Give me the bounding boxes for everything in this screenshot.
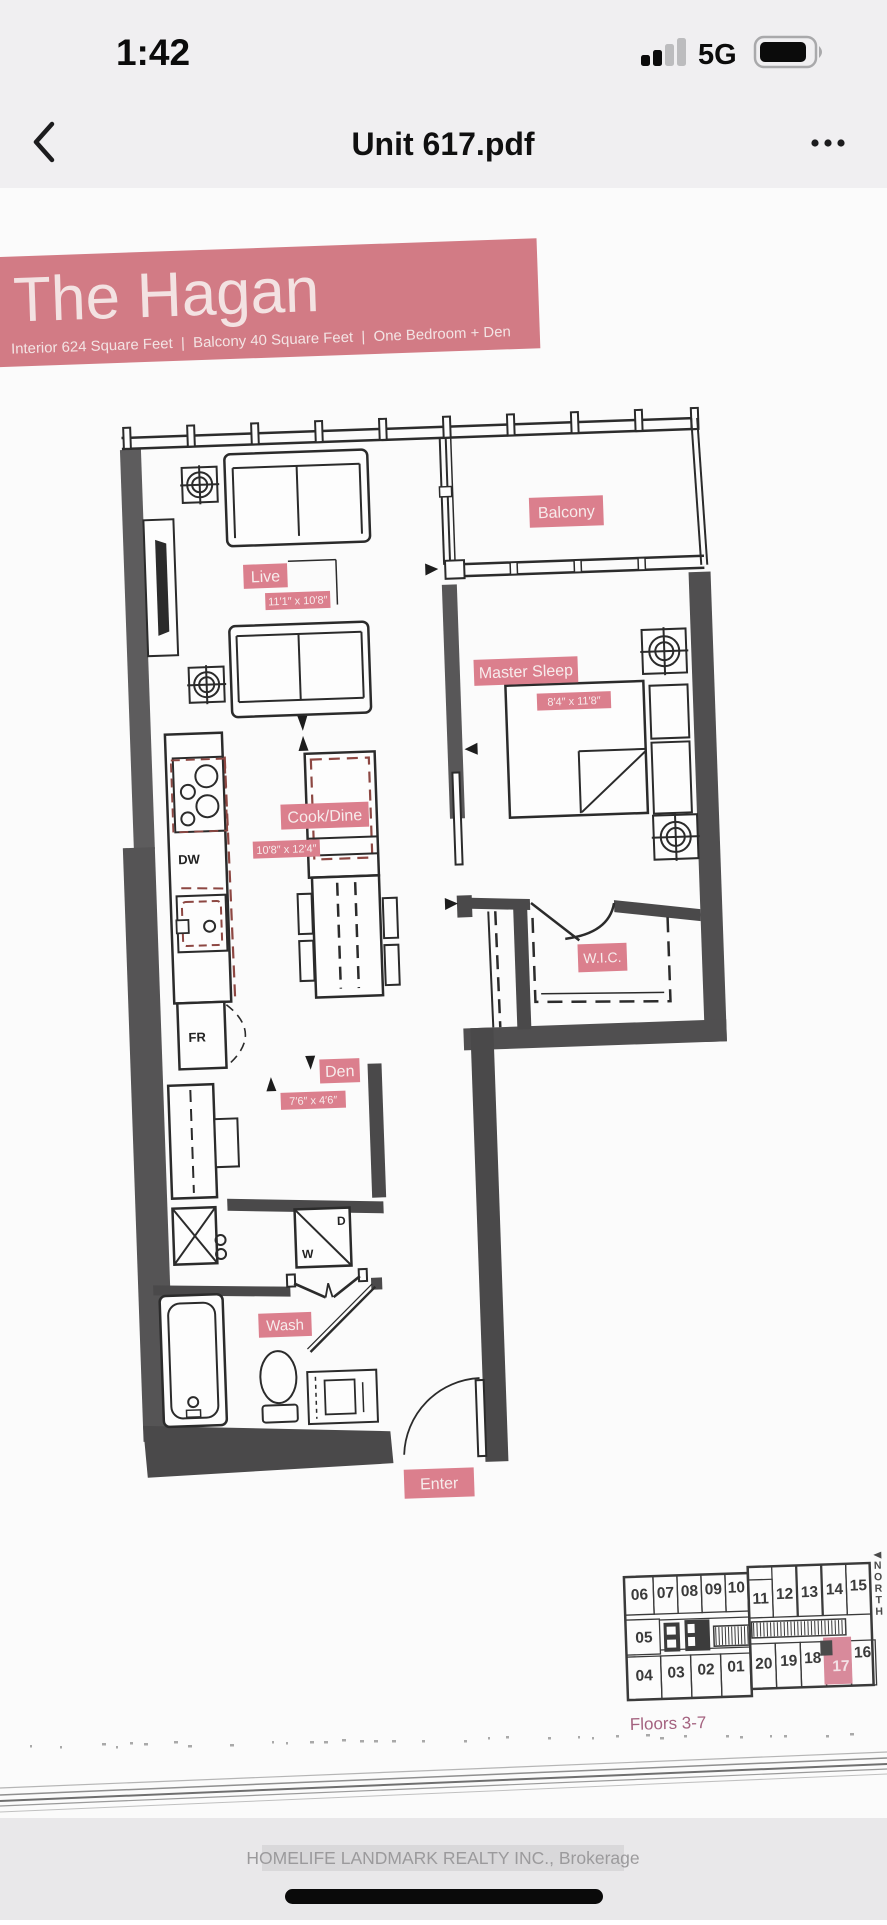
- svg-text:7′6″ x 4′6″: 7′6″ x 4′6″: [289, 1094, 337, 1108]
- svg-text:Den: Den: [325, 1063, 355, 1081]
- svg-text:8′4″ x 11′8″: 8′4″ x 11′8″: [547, 695, 601, 709]
- svg-text:14: 14: [826, 1581, 844, 1599]
- svg-text:The Hagan: The Hagan: [12, 255, 320, 336]
- svg-text:20: 20: [755, 1655, 773, 1673]
- svg-text:13: 13: [801, 1584, 819, 1602]
- svg-text:D: D: [337, 1214, 346, 1228]
- svg-text:Unit 617.pdf: Unit 617.pdf: [351, 126, 534, 162]
- svg-text:18: 18: [804, 1650, 822, 1668]
- svg-text:11: 11: [752, 1590, 769, 1608]
- svg-text:02: 02: [697, 1661, 715, 1679]
- svg-text:17: 17: [832, 1658, 850, 1676]
- svg-text:1:42: 1:42: [116, 32, 190, 73]
- svg-text:10′8″ x 12′4″: 10′8″ x 12′4″: [256, 843, 317, 857]
- svg-text:W.I.C.: W.I.C.: [583, 949, 622, 966]
- svg-text:09: 09: [704, 1581, 722, 1599]
- svg-text:10: 10: [727, 1579, 745, 1597]
- svg-text:Wash: Wash: [266, 1317, 304, 1335]
- svg-text:19: 19: [780, 1652, 798, 1670]
- svg-text:R: R: [874, 1583, 882, 1595]
- svg-text:W: W: [302, 1247, 314, 1261]
- svg-text:07: 07: [657, 1585, 675, 1603]
- svg-text:15: 15: [849, 1577, 867, 1595]
- svg-text:Balcony: Balcony: [538, 503, 595, 522]
- svg-text:O: O: [874, 1571, 883, 1583]
- svg-text:Live: Live: [250, 568, 280, 586]
- svg-text:Cook/Dine: Cook/Dine: [287, 807, 362, 827]
- svg-text:08: 08: [681, 1583, 699, 1601]
- svg-text:Floors 3-7: Floors 3-7: [630, 1713, 707, 1734]
- svg-text:FR: FR: [188, 1029, 206, 1045]
- svg-text:06: 06: [631, 1586, 649, 1604]
- svg-text:T: T: [875, 1594, 882, 1606]
- svg-text:Enter: Enter: [420, 1475, 459, 1493]
- svg-text:HOMELIFE LANDMARK REALTY INC.,: HOMELIFE LANDMARK REALTY INC., Brokerage: [246, 1848, 639, 1868]
- svg-text:Master Sleep: Master Sleep: [479, 662, 574, 682]
- svg-text:01: 01: [727, 1658, 745, 1676]
- svg-text:12: 12: [776, 1586, 794, 1604]
- svg-text:H: H: [875, 1606, 883, 1618]
- svg-text:04: 04: [635, 1667, 653, 1685]
- svg-text:11′1″ x 10′8″: 11′1″ x 10′8″: [268, 594, 328, 608]
- svg-text:DW: DW: [178, 852, 201, 868]
- svg-text:N: N: [874, 1560, 882, 1572]
- svg-text:16: 16: [854, 1644, 872, 1662]
- svg-text:5G: 5G: [698, 39, 737, 71]
- svg-text:03: 03: [667, 1664, 685, 1682]
- svg-text:05: 05: [635, 1629, 653, 1647]
